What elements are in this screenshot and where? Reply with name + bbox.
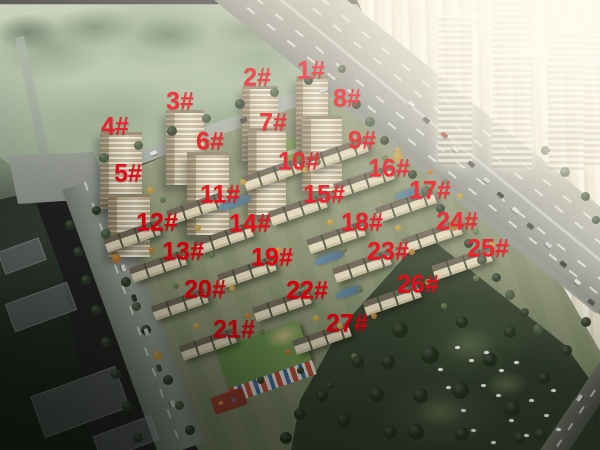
building-label-26: 26#	[397, 273, 439, 298]
building-label-11: 11#	[200, 183, 240, 208]
tree	[65, 220, 75, 230]
building-label-27: 27#	[326, 312, 368, 337]
tree	[73, 247, 83, 257]
tree	[538, 372, 550, 384]
bird-icon	[514, 361, 519, 364]
bird-icon	[499, 369, 504, 372]
building-label-15: 15#	[303, 183, 345, 208]
tree	[456, 316, 468, 328]
tree	[395, 147, 401, 153]
tree	[112, 254, 121, 263]
tree	[81, 275, 91, 285]
cloud	[548, 20, 596, 36]
tree	[413, 388, 428, 403]
tree	[149, 247, 155, 253]
tree	[202, 114, 211, 123]
park-lawn	[484, 370, 528, 398]
tree	[163, 375, 173, 385]
cloud	[448, 7, 508, 25]
tree	[280, 432, 292, 444]
tree	[492, 273, 501, 282]
bird-icon	[484, 351, 489, 354]
bird-icon	[544, 414, 549, 417]
tree	[297, 367, 304, 374]
tree	[504, 326, 516, 338]
tree	[392, 322, 408, 338]
tree	[294, 408, 306, 420]
tree	[173, 283, 179, 289]
tree	[101, 337, 111, 347]
tree	[327, 219, 333, 225]
building-label-3: 3#	[166, 90, 194, 115]
bird-icon	[551, 389, 556, 392]
building-label-13: 13#	[162, 240, 204, 265]
building-label-21: 21#	[213, 318, 255, 343]
building-label-2: 2#	[243, 66, 271, 91]
tree	[193, 323, 199, 329]
tree	[483, 353, 497, 367]
tree	[473, 275, 479, 281]
tree	[341, 247, 347, 253]
tree	[175, 401, 184, 410]
tree	[441, 303, 447, 309]
tree	[313, 315, 319, 321]
tree	[384, 426, 397, 439]
tree	[581, 317, 591, 327]
tree	[195, 225, 201, 231]
tree	[427, 169, 433, 175]
cloud	[501, 41, 555, 59]
tree	[352, 356, 364, 368]
tree	[409, 249, 415, 255]
tree	[505, 290, 515, 300]
building-label-10: 10#	[278, 150, 320, 175]
tree	[533, 324, 543, 334]
building-label-1: 1#	[297, 59, 325, 84]
tree	[395, 225, 401, 231]
tree	[581, 192, 590, 201]
bird-icon	[556, 428, 561, 431]
building-label-12: 12#	[136, 211, 178, 236]
building-label-8: 8#	[333, 87, 361, 112]
tree	[235, 99, 245, 109]
building-label-20: 20#	[184, 278, 226, 303]
tree	[92, 206, 101, 215]
tree	[338, 65, 346, 73]
bird-icon	[469, 359, 474, 362]
tree	[457, 193, 463, 199]
tree	[327, 382, 334, 389]
tree	[381, 355, 395, 369]
building-label-4: 4#	[101, 115, 129, 140]
background-tower	[584, 25, 600, 165]
tree	[101, 229, 111, 239]
tree	[505, 401, 520, 416]
tree	[185, 425, 195, 435]
tree	[337, 413, 351, 427]
tree	[153, 351, 162, 360]
building-label-19: 19#	[251, 246, 293, 271]
tree	[259, 329, 265, 335]
building-label-14: 14#	[229, 212, 271, 237]
tree	[122, 401, 132, 411]
building-label-17: 17#	[409, 179, 451, 204]
bird-icon	[524, 434, 529, 437]
bird-icon	[446, 386, 451, 389]
building-label-7: 7#	[259, 111, 287, 136]
tree	[365, 117, 375, 127]
tree	[257, 377, 264, 384]
background-tower	[492, 0, 532, 168]
tree	[452, 382, 469, 399]
tree	[121, 277, 131, 287]
bird-icon	[491, 441, 496, 444]
tree	[369, 387, 384, 402]
tree	[132, 302, 141, 311]
tree	[134, 141, 143, 150]
building-label-24: 24#	[436, 210, 478, 235]
tree	[455, 427, 469, 441]
tree	[133, 433, 143, 443]
ghost-building	[92, 415, 159, 450]
tree	[408, 424, 424, 440]
tree	[421, 346, 439, 364]
tree	[592, 216, 600, 224]
building-label-18: 18#	[341, 211, 383, 236]
tree	[167, 126, 177, 136]
building-label-23: 23#	[367, 240, 409, 265]
building-label-5: 5#	[114, 162, 142, 187]
bird-icon	[461, 409, 466, 412]
bird-icon	[438, 368, 443, 371]
tree	[520, 308, 529, 317]
tree	[380, 136, 389, 145]
tree	[160, 197, 166, 203]
tree	[111, 369, 121, 379]
aerial-render-canvas: 1#2#3#4#5#6#7#8#9#10#11#12#13#14#15#16#1…	[0, 0, 600, 450]
background-tower	[438, 15, 472, 165]
bird-icon	[455, 346, 460, 349]
building-label-22: 22#	[286, 279, 328, 304]
tree	[91, 305, 101, 315]
tree	[357, 287, 363, 293]
bird-icon	[496, 394, 501, 397]
bird-icon	[529, 399, 534, 402]
building-label-25: 25#	[467, 237, 509, 262]
building-label-6: 6#	[196, 130, 224, 155]
bird-icon	[509, 419, 514, 422]
bird-icon	[481, 384, 486, 387]
tree	[561, 345, 572, 356]
tree	[285, 349, 291, 355]
tree	[99, 153, 109, 163]
building-label-16: 16#	[368, 157, 410, 182]
tree	[371, 313, 377, 319]
building-label-9: 9#	[348, 129, 376, 154]
tree	[240, 179, 246, 185]
bird-icon	[471, 429, 476, 432]
tree	[209, 252, 215, 258]
tree	[147, 187, 154, 194]
tree	[534, 428, 547, 441]
tree	[316, 390, 328, 402]
tree	[229, 285, 235, 291]
